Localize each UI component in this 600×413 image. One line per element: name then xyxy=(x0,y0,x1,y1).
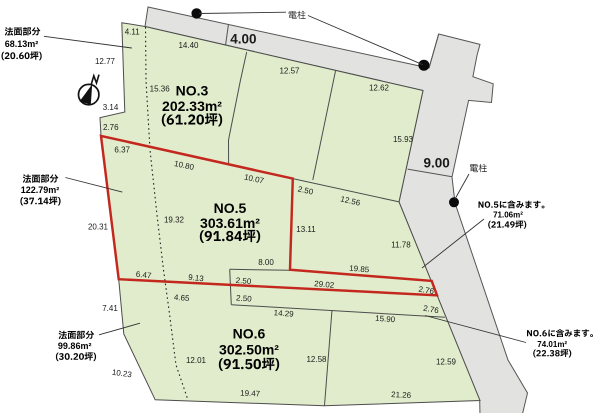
svg-text:15.36: 15.36 xyxy=(150,84,171,93)
svg-text:68.13m²: 68.13m² xyxy=(5,39,39,49)
svg-text:19.32: 19.32 xyxy=(164,216,185,225)
svg-text:12.62: 12.62 xyxy=(369,84,390,93)
svg-text:8.00: 8.00 xyxy=(258,258,274,267)
svg-text:9.00: 9.00 xyxy=(423,156,449,171)
svg-text:4.11: 4.11 xyxy=(125,28,141,37)
svg-text:NO.3: NO.3 xyxy=(176,83,209,99)
svg-text:7.41: 7.41 xyxy=(102,304,118,313)
svg-text:2.76: 2.76 xyxy=(103,123,119,132)
svg-text:20.31: 20.31 xyxy=(88,223,109,232)
svg-text:122.79m²: 122.79m² xyxy=(21,185,60,195)
svg-text:14.29: 14.29 xyxy=(273,308,294,318)
svg-text:11.78: 11.78 xyxy=(391,241,411,250)
svg-text:21.26: 21.26 xyxy=(391,390,412,400)
svg-text:NO.6: NO.6 xyxy=(233,326,266,342)
svg-text:4.65: 4.65 xyxy=(174,293,191,303)
svg-text:12.57: 12.57 xyxy=(279,67,300,76)
svg-text:6.37: 6.37 xyxy=(114,146,130,155)
svg-text:303.61m²: 303.61m² xyxy=(200,215,260,231)
svg-text:4.00: 4.00 xyxy=(230,32,256,47)
svg-text:12.58: 12.58 xyxy=(306,355,327,364)
svg-text:19.85: 19.85 xyxy=(349,264,370,275)
svg-text:2.50: 2.50 xyxy=(236,293,253,303)
svg-text:302.50m²: 302.50m² xyxy=(219,342,279,358)
svg-text:NO.5: NO.5 xyxy=(214,200,247,216)
svg-text:12.01: 12.01 xyxy=(186,356,207,365)
svg-text:74.01m²: 74.01m² xyxy=(537,340,567,349)
svg-text:202.33m²: 202.33m² xyxy=(162,98,222,114)
svg-text:99.86m²: 99.86m² xyxy=(58,341,92,351)
svg-text:71.06m²: 71.06m² xyxy=(493,211,523,220)
svg-text:14.40: 14.40 xyxy=(178,41,199,50)
svg-text:6.47: 6.47 xyxy=(135,270,152,281)
svg-text:9.13: 9.13 xyxy=(188,273,205,284)
svg-text:12.59: 12.59 xyxy=(436,358,457,367)
svg-text:19.47: 19.47 xyxy=(240,388,261,398)
svg-text:3.14: 3.14 xyxy=(103,103,119,112)
svg-text:29.02: 29.02 xyxy=(314,279,335,290)
svg-text:2.50: 2.50 xyxy=(235,276,252,286)
svg-text:13.11: 13.11 xyxy=(296,225,316,234)
svg-text:15.90: 15.90 xyxy=(375,314,396,324)
svg-text:12.77: 12.77 xyxy=(95,57,116,66)
svg-text:15.93: 15.93 xyxy=(393,135,414,144)
